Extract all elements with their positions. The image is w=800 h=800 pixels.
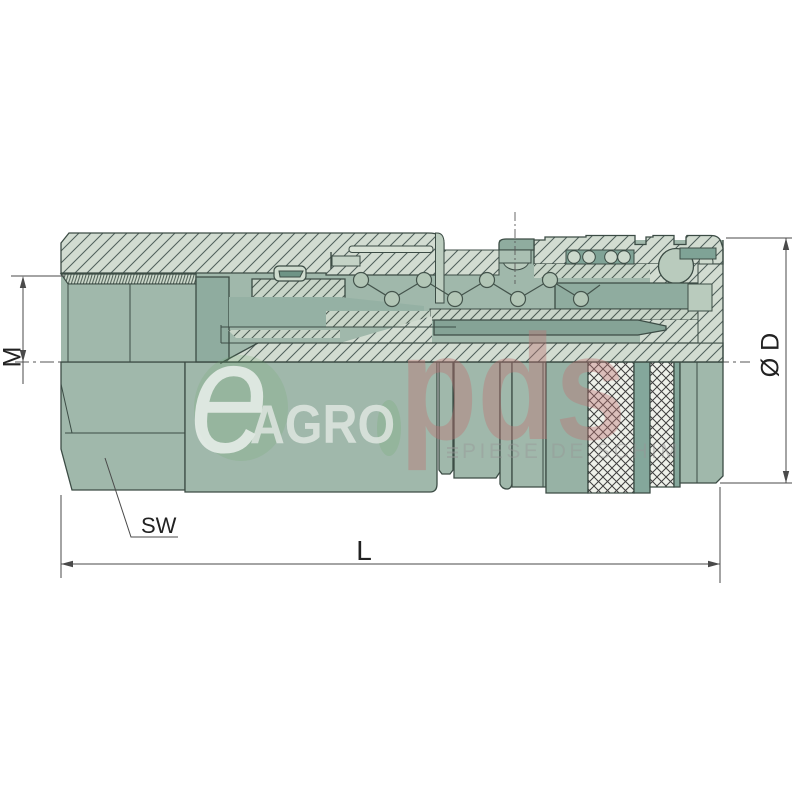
svg-text:M: M (0, 347, 27, 368)
svg-text:L: L (356, 535, 372, 566)
svg-text:Ø D: Ø D (757, 333, 785, 377)
svg-text:AGRO: AGRO (250, 393, 395, 455)
svg-text:SW: SW (141, 513, 177, 538)
svg-text:PIESE DE SCHIM: PIESE DE SCHIM (462, 440, 681, 463)
